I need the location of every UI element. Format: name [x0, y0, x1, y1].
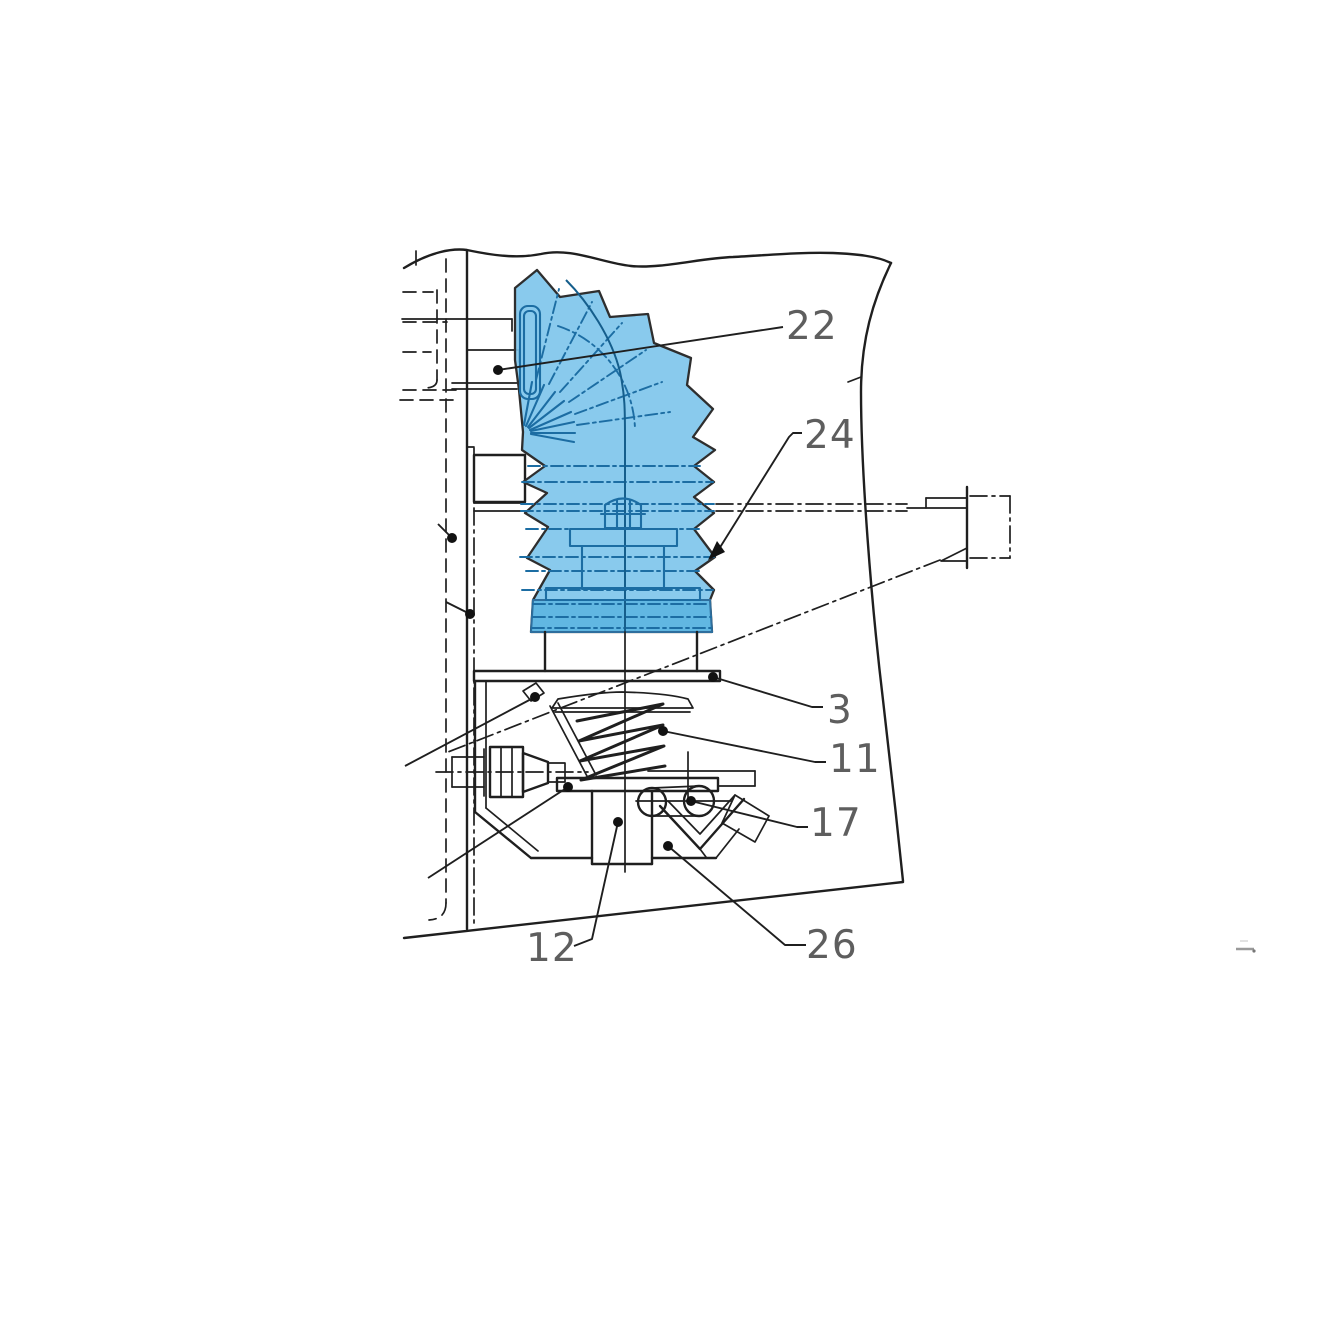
panel-bracket — [474, 455, 525, 502]
housing-diagonal-inner — [486, 808, 538, 851]
stray-mark — [1236, 941, 1256, 953]
leader-dot-lower-plate — [563, 782, 573, 792]
spring-seat-edge — [550, 706, 588, 778]
leader-lower-plate — [428, 787, 568, 878]
callout-3: 3 — [827, 688, 853, 733]
leader-clip — [405, 697, 535, 766]
housing-rise — [716, 829, 739, 858]
spring-coil — [577, 704, 665, 780]
leader-3 — [713, 677, 823, 707]
leader-12 — [574, 822, 618, 946]
callout-12: 12 — [526, 926, 578, 971]
callout-17: 17 — [810, 801, 862, 846]
drawing-canvas: 22 24 3 11 17 12 26 — [0, 0, 1320, 1320]
leader-dot-panel — [447, 533, 457, 543]
clevis-end — [907, 487, 1010, 568]
panel-hidden-hook — [429, 903, 446, 920]
leader-dot-11 — [658, 726, 668, 736]
callout-11: 11 — [829, 737, 881, 782]
hidden-hook — [424, 380, 437, 388]
leader-dot-clip — [530, 692, 540, 702]
boot-body — [515, 270, 715, 632]
curve-tick — [848, 377, 861, 382]
housing-diagonal — [475, 812, 531, 858]
leader-dot-22 — [493, 365, 503, 375]
leader-24 — [719, 433, 802, 549]
v-bracket-foot — [700, 849, 706, 857]
callout-26: 26 — [806, 923, 858, 968]
leader-dot-26 — [663, 841, 673, 851]
parts-diagram: 22 24 3 11 17 12 26 — [0, 0, 1320, 1320]
callout-22: 22 — [786, 304, 838, 349]
callout-24: 24 — [804, 413, 856, 458]
leader-dot-17 — [686, 796, 696, 806]
bellows-boot — [515, 270, 715, 632]
mount-plate — [474, 671, 720, 681]
leader-dot-12 — [613, 817, 623, 827]
console-top-edge — [404, 250, 891, 268]
mount-assembly — [436, 632, 769, 872]
retainer-dome — [552, 692, 693, 708]
leader-dot-3 — [708, 672, 718, 682]
leader-dot-centerline — [465, 609, 475, 619]
console-right-edge — [861, 263, 903, 881]
